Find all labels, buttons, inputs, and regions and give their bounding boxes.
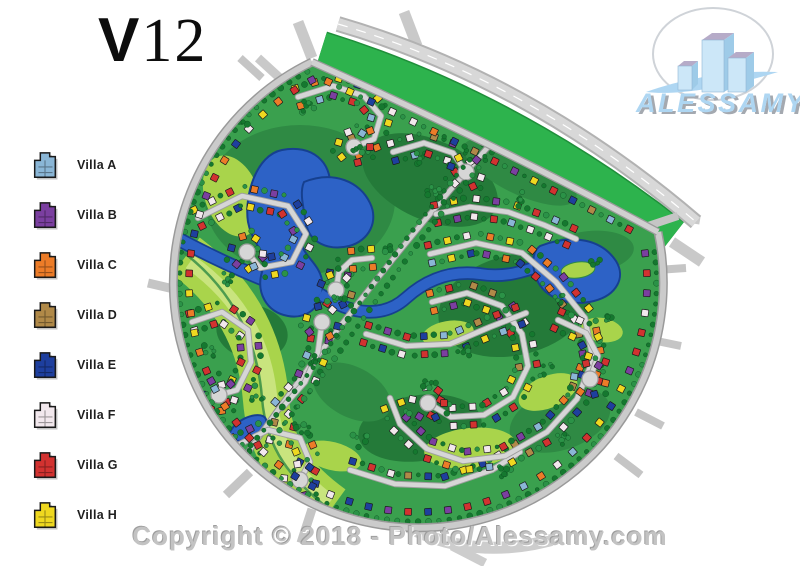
alessamy-logo: ALESSAMY ALESSAMY <box>616 4 800 120</box>
legend-item-villa-d: Villa D <box>30 290 180 340</box>
legend-label: Villa A <box>77 158 117 172</box>
legend-label: Villa F <box>77 408 116 422</box>
legend-label: Villa H <box>77 508 117 522</box>
legend-item-villa-g: Villa G <box>30 440 180 490</box>
masterplan-page: V12 Villa A Villa B Villa C Villa D Vill… <box>0 0 800 566</box>
villa-b-icon <box>30 199 60 231</box>
legend-item-villa-c: Villa C <box>30 240 180 290</box>
page-title: V12 <box>98 10 207 72</box>
villa-g-icon <box>30 449 60 481</box>
villa-e-icon <box>30 349 60 381</box>
copyright-watermark: Copyright © 2018 - Photo/Alessamy.com <box>0 521 800 552</box>
legend-label: Villa G <box>77 458 118 472</box>
logo-brand-text: ALESSAMY <box>635 88 800 118</box>
legend-item-villa-f: Villa F <box>30 390 180 440</box>
legend-item-villa-b: Villa B <box>30 190 180 240</box>
villa-c-icon <box>30 249 60 281</box>
villa-a-icon <box>30 149 60 181</box>
legend-label: Villa B <box>77 208 117 222</box>
legend-label: Villa E <box>77 358 116 372</box>
legend-label: Villa C <box>77 258 117 272</box>
villa-d-icon <box>30 299 60 331</box>
villa-f-icon <box>30 399 60 431</box>
logo-buildings-icon <box>678 33 754 92</box>
legend-label: Villa D <box>77 308 117 322</box>
legend-item-villa-e: Villa E <box>30 340 180 390</box>
villa-legend: Villa A Villa B Villa C Villa D Villa E … <box>30 140 180 540</box>
legend-item-villa-a: Villa A <box>30 140 180 190</box>
